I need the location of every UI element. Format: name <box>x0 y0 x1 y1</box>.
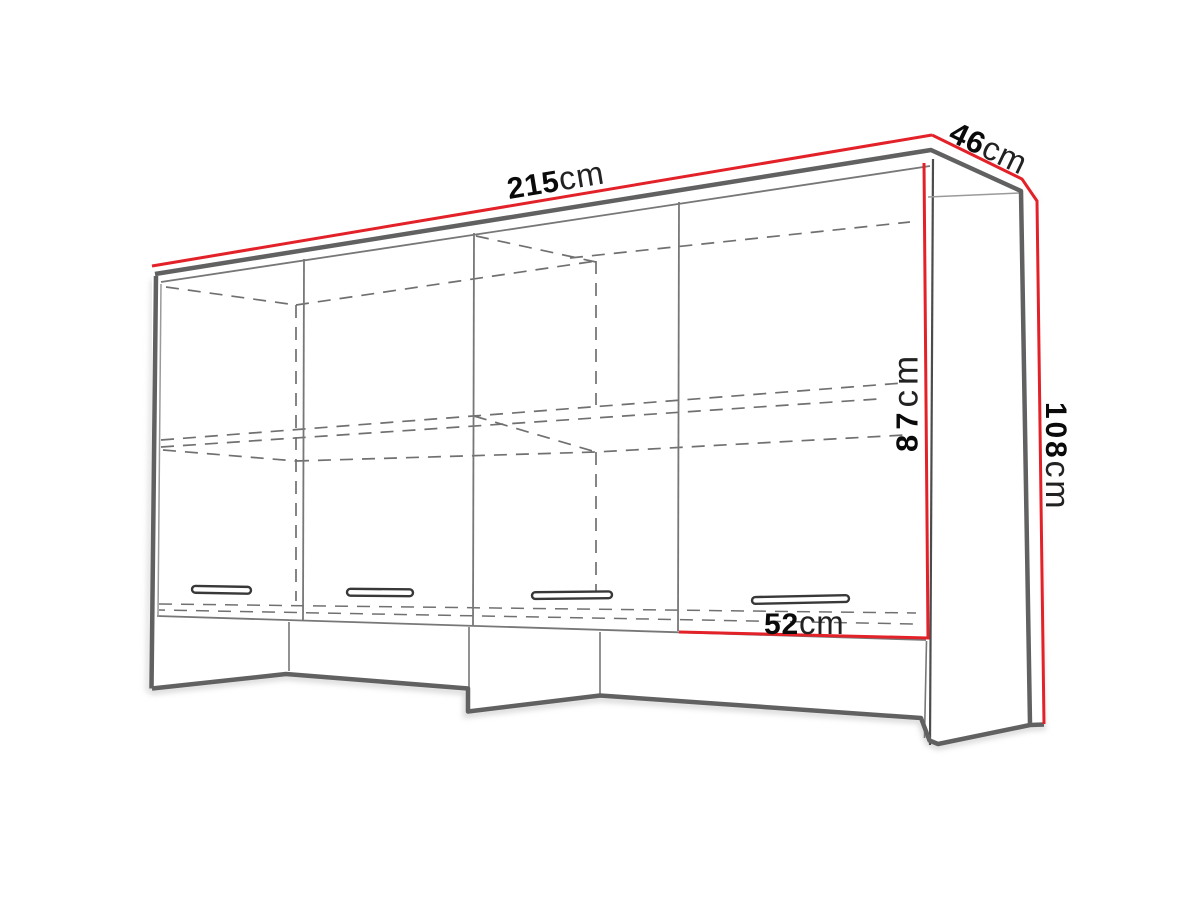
svg-text:52cm: 52cm <box>764 604 845 641</box>
svg-text:87cm: 87cm <box>887 351 926 452</box>
svg-text:108cm: 108cm <box>1038 402 1076 511</box>
